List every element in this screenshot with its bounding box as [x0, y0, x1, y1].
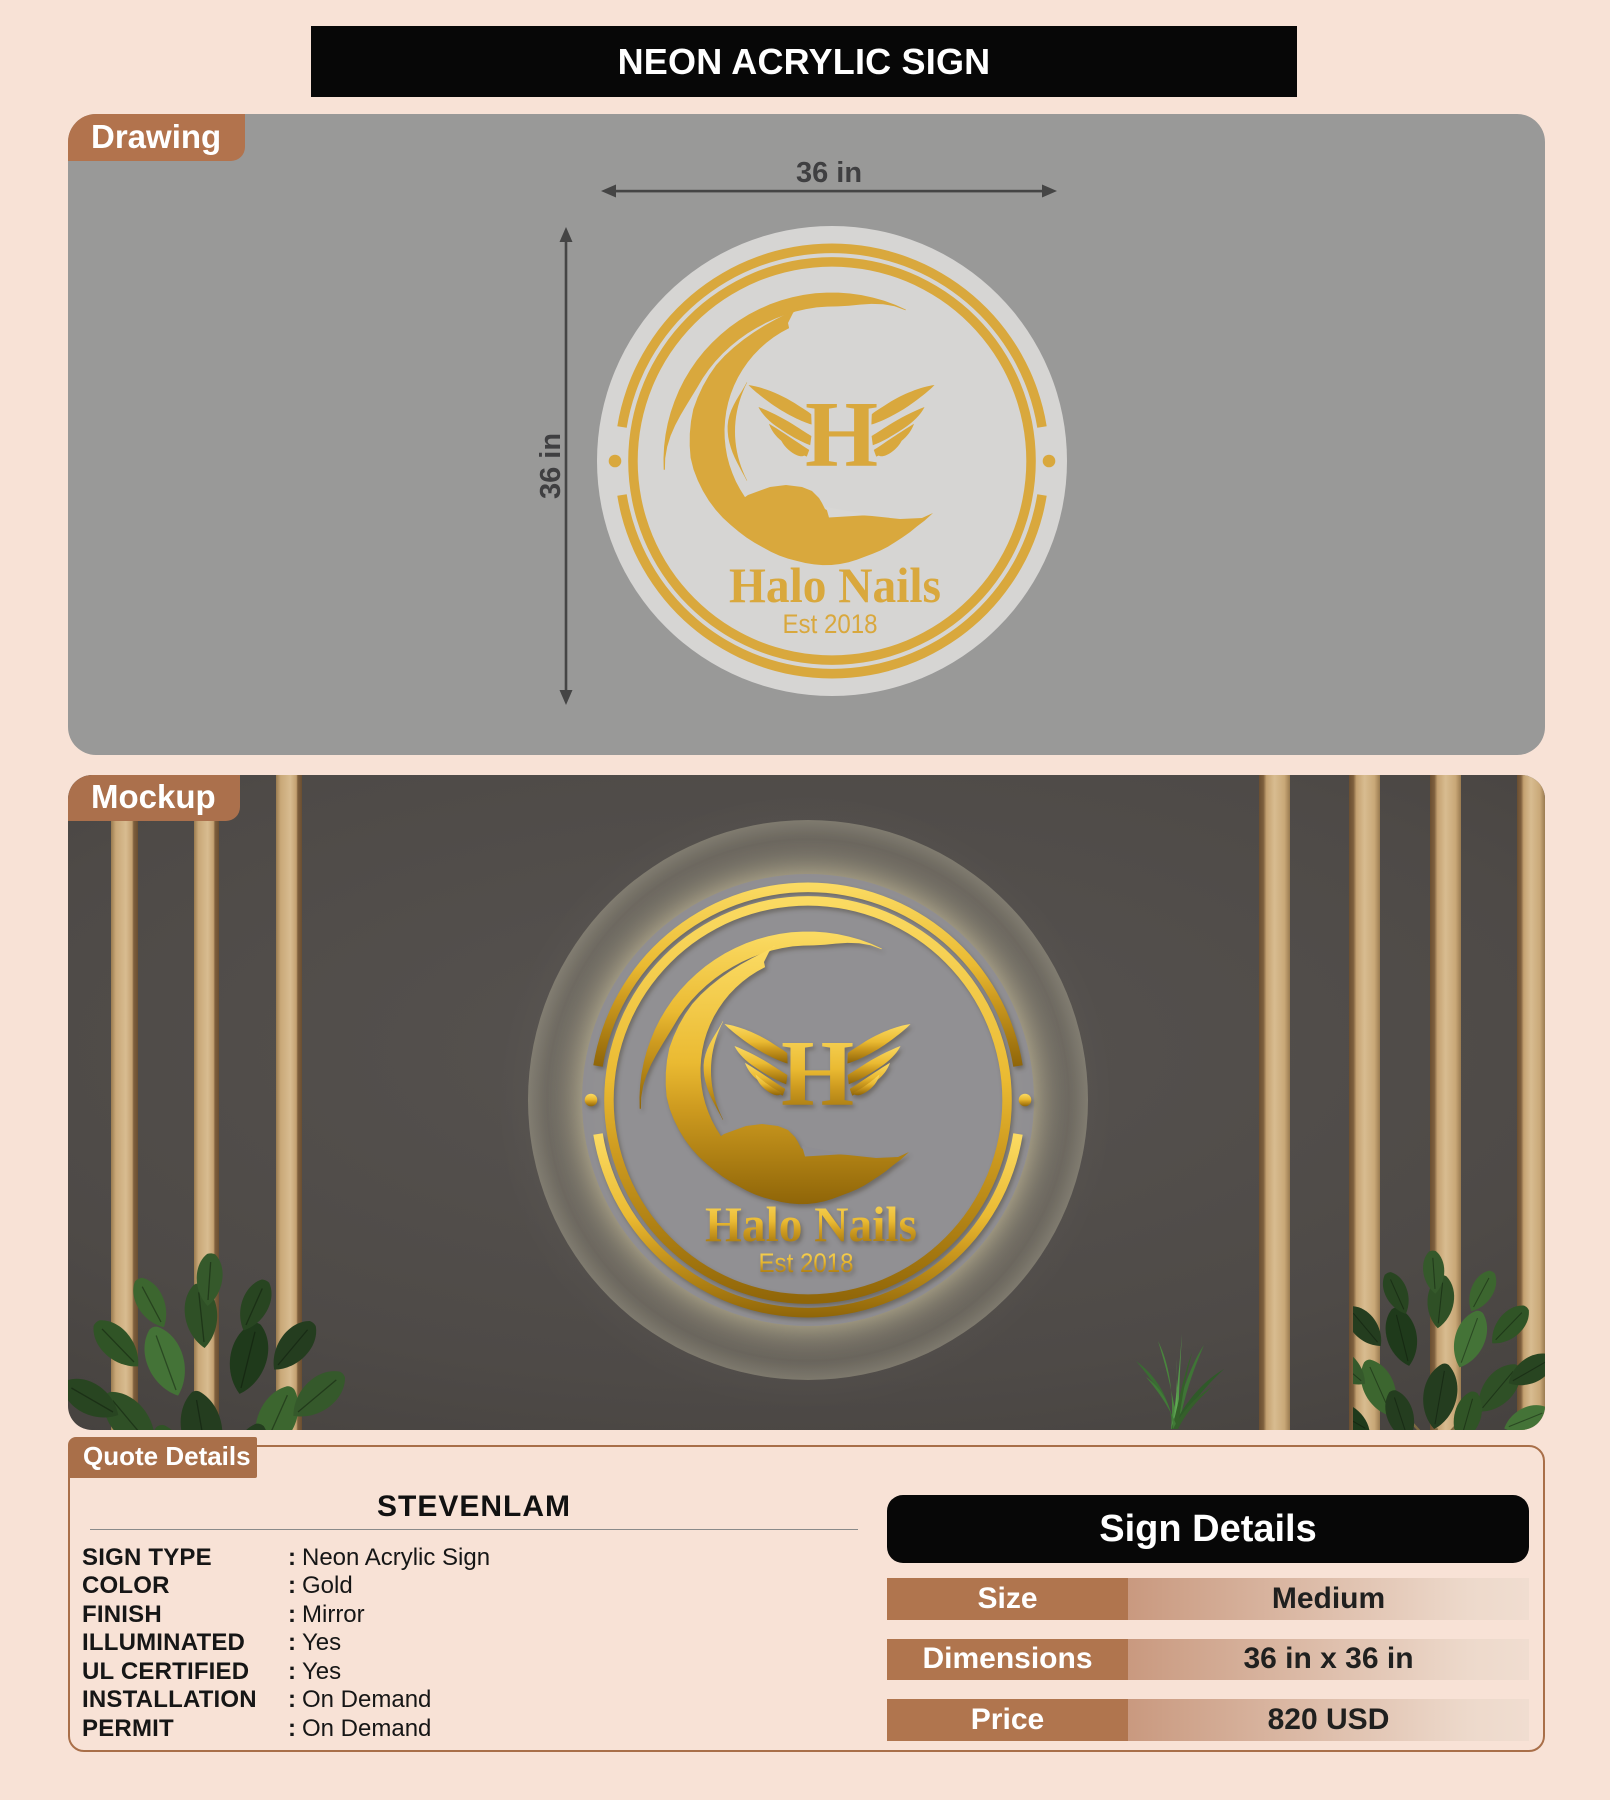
svg-text:36 in: 36 in	[535, 433, 567, 499]
svg-text:36 in: 36 in	[796, 157, 862, 189]
